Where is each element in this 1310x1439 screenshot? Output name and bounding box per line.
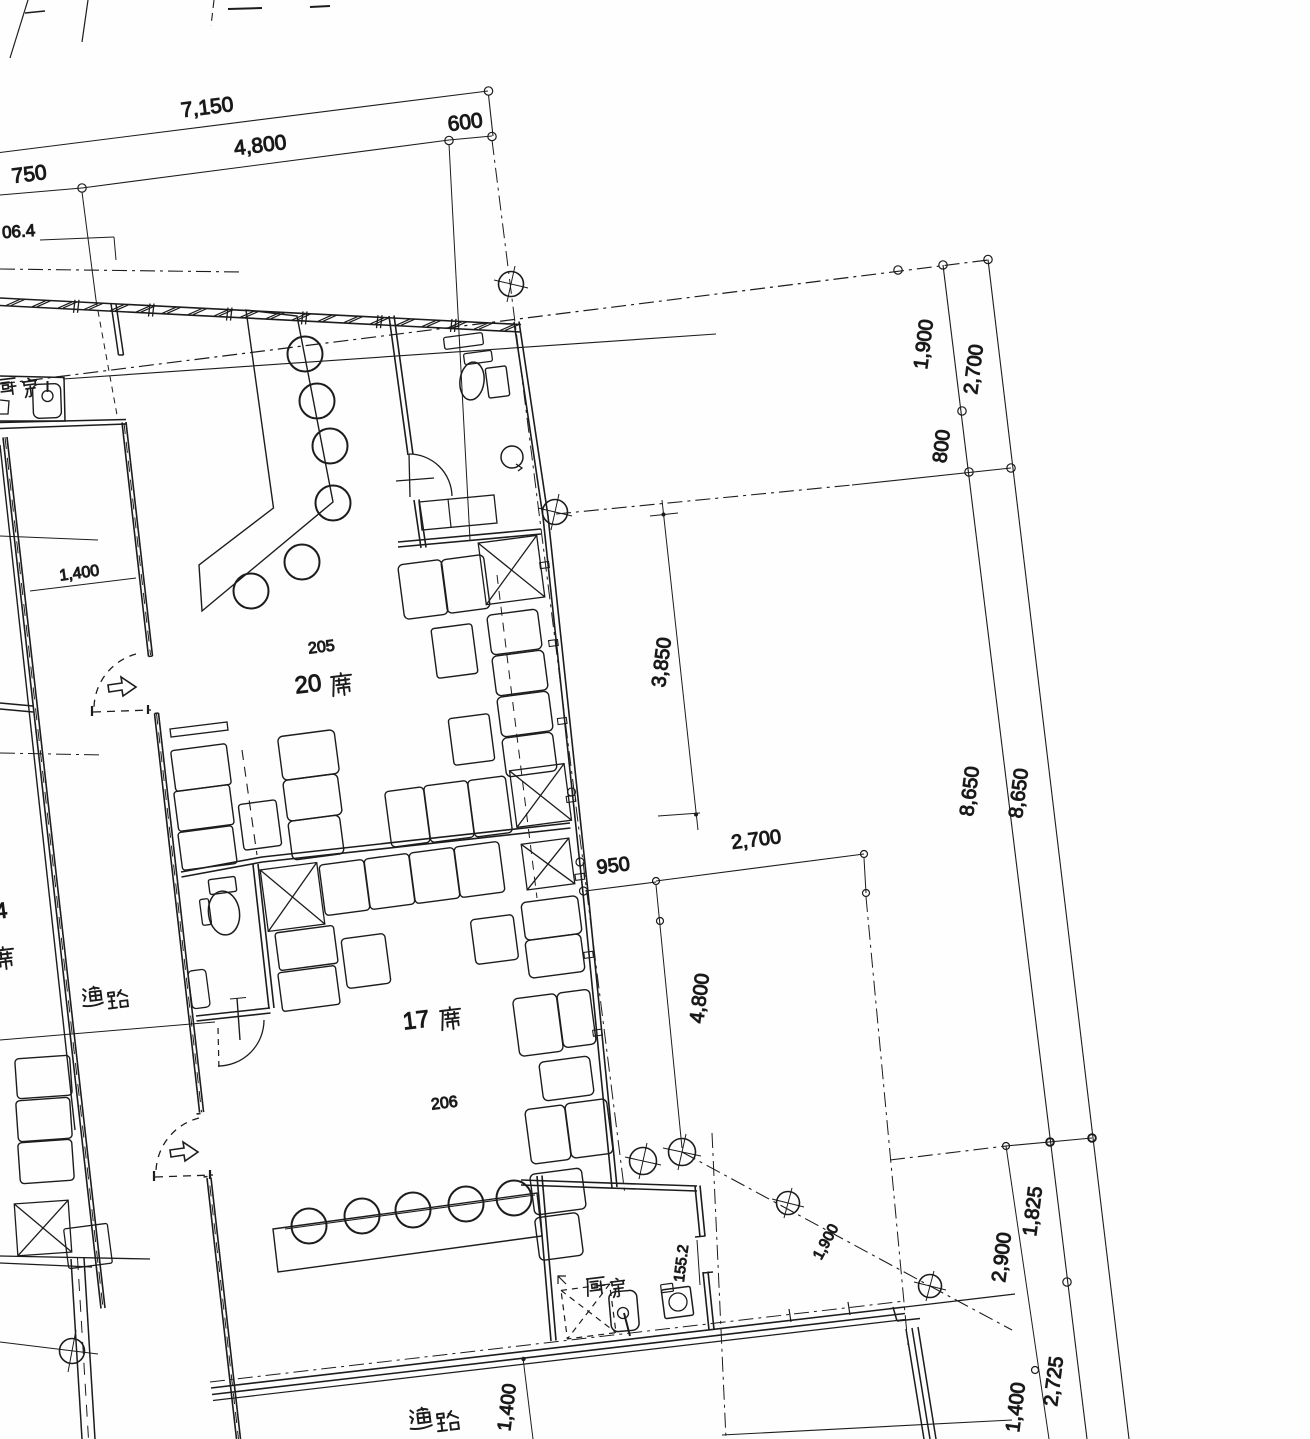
svg-text:750: 750 xyxy=(10,161,48,188)
svg-text:205: 205 xyxy=(307,637,336,657)
svg-text:600: 600 xyxy=(446,109,484,136)
svg-text:20: 20 xyxy=(293,670,323,700)
svg-text:950: 950 xyxy=(595,853,631,879)
svg-text:06.4: 06.4 xyxy=(1,221,35,242)
svg-text:206: 206 xyxy=(430,1093,459,1113)
svg-text:800: 800 xyxy=(929,428,955,464)
svg-text:17: 17 xyxy=(401,1006,431,1036)
